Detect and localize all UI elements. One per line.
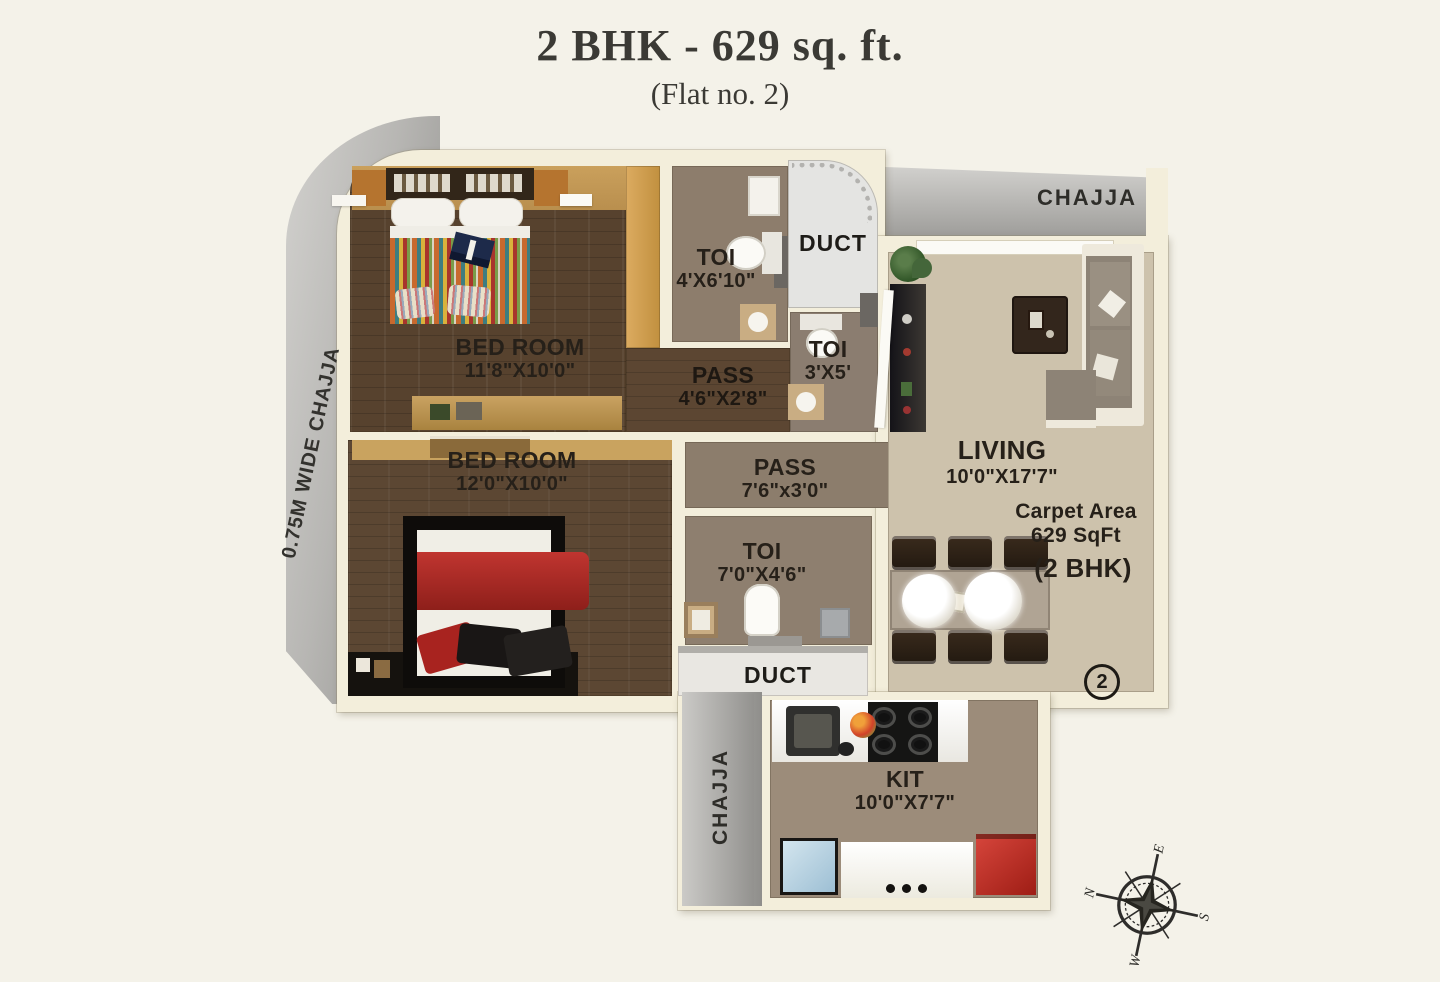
page-subtitle: (Flat no. 2) bbox=[0, 76, 1440, 112]
dining-chair bbox=[948, 536, 992, 570]
bedroom1-window-stub bbox=[332, 195, 366, 206]
living-name: LIVING bbox=[922, 436, 1082, 466]
compass-south-label: S bbox=[1196, 912, 1213, 922]
bedroom2-label: BED ROOM 12'0"X10'0" bbox=[427, 447, 597, 496]
tv-unit-red-dot bbox=[903, 348, 911, 356]
page-title: 2 BHK - 629 sq. ft. bbox=[0, 20, 1440, 71]
toilet2-name: TOI bbox=[778, 336, 878, 362]
top-right-chajja-label: CHAJJA bbox=[1007, 185, 1167, 211]
toilet1-dims: 4'X6'10" bbox=[664, 270, 768, 293]
coffee-table-dot bbox=[1046, 330, 1054, 338]
toilet3-label: TOI 7'0"X4'6" bbox=[705, 538, 819, 587]
dining-chair bbox=[948, 630, 992, 664]
headboard-cushion-right bbox=[466, 174, 522, 192]
compass-rose-icon: N E S W bbox=[1070, 828, 1224, 982]
passage1-name: PASS bbox=[658, 362, 788, 388]
toilet1-shelf bbox=[748, 176, 780, 216]
wall-accent-dark-2 bbox=[860, 293, 878, 327]
toilet3-dims: 7'0"X4'6" bbox=[705, 564, 819, 587]
sofa-chaise bbox=[1046, 370, 1096, 426]
toilet1-washbasin-bowl bbox=[748, 312, 768, 332]
kitchen-name: KIT bbox=[825, 766, 985, 792]
dining-chair bbox=[892, 536, 936, 570]
carpet-area-line1: Carpet Area bbox=[995, 500, 1157, 524]
tv-unit-speaker bbox=[902, 314, 912, 324]
duct-top-label: DUCT bbox=[788, 230, 878, 257]
passage2-name: PASS bbox=[718, 454, 852, 480]
carpet-area-line2: 629 SqFt bbox=[995, 524, 1157, 548]
bed2-red-blanket bbox=[417, 552, 589, 610]
tv-unit-red-decor bbox=[903, 406, 911, 414]
bedroom1-wardrobe-strip bbox=[626, 166, 660, 348]
living-label: LIVING 10'0"X17'7" bbox=[922, 436, 1082, 488]
bed1-pillow-left bbox=[391, 198, 455, 228]
bed1-pillow-right bbox=[459, 198, 523, 228]
compass-east-label: E bbox=[1150, 843, 1168, 856]
toilet2-label: TOI 3'X5' bbox=[778, 336, 878, 385]
kitchen-red-cabinet bbox=[976, 834, 1036, 895]
passage2-dims: 7'6"x3'0" bbox=[718, 480, 852, 503]
tv-unit-plant-decor bbox=[901, 382, 912, 396]
toilet3-wc-base bbox=[748, 636, 802, 646]
sofa-chaise-edge bbox=[1046, 420, 1096, 428]
bed1-foot-pillow-2 bbox=[447, 284, 491, 318]
toilet2-dims: 3'X5' bbox=[778, 362, 878, 385]
carpet-area-note: Carpet Area 629 SqFt (2 BHK) bbox=[995, 500, 1157, 584]
dresser-item-gray bbox=[456, 402, 482, 420]
kitchen-pot bbox=[838, 742, 854, 756]
dining-chair bbox=[1004, 630, 1048, 664]
duct-bottom-label: DUCT bbox=[708, 662, 848, 689]
bedroom1-name: BED ROOM bbox=[435, 334, 605, 360]
coffee-table-frame bbox=[1028, 310, 1044, 330]
bed1-foot-pillow-1 bbox=[395, 286, 436, 320]
kitchen-label: KIT 10'0"X7'7" bbox=[825, 766, 985, 815]
stove-burner bbox=[872, 734, 896, 755]
passage1-label: PASS 4'6"X2'8" bbox=[658, 362, 788, 411]
bedroom2-dims: 12'0"X10'0" bbox=[427, 473, 597, 496]
counter-knobs bbox=[886, 884, 895, 893]
toilet1-name: TOI bbox=[664, 244, 768, 270]
kitchen-sink-basin bbox=[794, 714, 832, 748]
passage1-dims: 4'6"X2'8" bbox=[658, 388, 788, 411]
dining-plate-1 bbox=[902, 574, 956, 628]
toilet3-frame-inner bbox=[692, 610, 710, 630]
bottom-left-chajja-label: CHAJJA bbox=[709, 712, 735, 882]
bedroom2-name: BED ROOM bbox=[427, 447, 597, 473]
toilet1-label: TOI 4'X6'10" bbox=[664, 244, 768, 293]
toilet3-cabinet bbox=[820, 608, 850, 638]
living-dims: 10'0"X17'7" bbox=[922, 466, 1082, 489]
toilet3-name: TOI bbox=[705, 538, 819, 564]
wardrobe-item-white bbox=[356, 658, 370, 672]
kitchen-dims: 10'0"X7'7" bbox=[825, 792, 985, 815]
dresser-item-green bbox=[430, 404, 450, 420]
plant-leaf bbox=[912, 258, 932, 278]
stove-burner bbox=[908, 734, 932, 755]
bedroom1-label: BED ROOM 11'8"X10'0" bbox=[435, 334, 605, 383]
wardrobe-item-gold bbox=[374, 660, 390, 678]
passage2-label: PASS 7'6"x3'0" bbox=[718, 454, 852, 503]
bedroom1-door-leaf bbox=[560, 194, 592, 206]
stove-burner bbox=[908, 707, 932, 728]
headboard-cushion-left bbox=[394, 174, 450, 192]
toilet2-washbasin-bowl bbox=[796, 392, 816, 412]
vegetable-basket bbox=[850, 712, 876, 738]
compass-north-label: N bbox=[1081, 885, 1099, 900]
dining-chair bbox=[892, 630, 936, 664]
toilet3-wc bbox=[744, 584, 780, 636]
flat-number-badge: 2 bbox=[1084, 664, 1120, 700]
kitchen-blue-cabinet bbox=[780, 838, 838, 895]
bedroom1-dims: 11'8"X10'0" bbox=[435, 360, 605, 383]
kitchen-white-counter bbox=[841, 842, 973, 898]
carpet-area-line3: (2 BHK) bbox=[995, 554, 1157, 584]
